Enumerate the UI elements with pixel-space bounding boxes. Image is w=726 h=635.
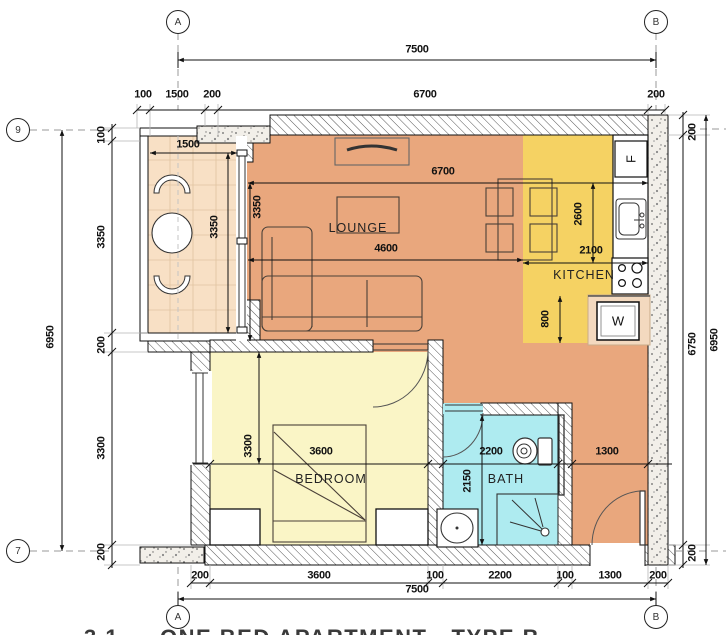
dim-bedroom-3600: 3600 — [309, 447, 332, 458]
bedroom-window — [189, 371, 212, 465]
dim-bot-1300: 1300 — [598, 571, 621, 582]
balcony-rail-left — [140, 128, 148, 341]
dim-right-overall: 6950 — [710, 328, 721, 351]
entry-door-leaf — [640, 491, 645, 545]
entry-floor — [570, 343, 648, 545]
wall-top — [270, 115, 648, 135]
dim-bath-2200: 2200 — [479, 447, 502, 458]
dim-right-6750: 6750 — [688, 332, 699, 355]
mullion — [237, 150, 247, 156]
dim-bot-100: 100 — [426, 571, 443, 582]
dim-right-200b: 200 — [688, 544, 699, 561]
dim-left-3300: 3300 — [97, 436, 108, 459]
wall-bath-top — [481, 403, 566, 415]
dim-bot-100b: 100 — [556, 571, 573, 582]
grid-bubble-9: 9 — [6, 118, 30, 142]
wall-bedroom-left-lower — [191, 463, 210, 545]
dim-left-3350: 3350 — [97, 225, 108, 248]
wall-bath-right — [558, 403, 572, 545]
dim-lounge-4600: 4600 — [374, 244, 397, 255]
balcony-table — [152, 213, 192, 253]
dim-top-200b: 200 — [647, 90, 664, 101]
dim-top-1500: 1500 — [165, 90, 188, 101]
dim-kitchen-2600: 2600 — [574, 202, 585, 225]
washer-label: W — [612, 315, 624, 328]
dim-kitchen-2100: 2100 — [579, 246, 602, 257]
bedside-table — [210, 509, 260, 545]
dim-bath-2150: 2150 — [463, 469, 474, 492]
dim-left-overall: 6950 — [46, 325, 57, 348]
dim-kitchen-800: 800 — [541, 310, 552, 327]
room-label-bath: BATH — [488, 473, 524, 486]
dim-left-200b: 200 — [97, 543, 108, 560]
dim-balcony-1500: 1500 — [176, 140, 199, 151]
dim-right-200: 200 — [688, 123, 699, 140]
dim-top-6700: 6700 — [413, 90, 436, 101]
wall-bedroom-top — [210, 340, 373, 352]
caption-number: 3.1 — [84, 625, 119, 635]
room-label-kitchen: KITCHEN — [553, 269, 615, 282]
floor-plan: A B 9 7 A B 7500 100 1500 200 6700 200 6… — [0, 0, 726, 635]
wall-right-concrete — [648, 115, 668, 565]
dim-left-200: 200 — [97, 336, 108, 353]
dim-bot-200: 200 — [191, 571, 208, 582]
dim-top-200: 200 — [203, 90, 220, 101]
grid-bubble-a-top: A — [166, 10, 190, 34]
dim-left-100: 100 — [97, 126, 108, 143]
dim-bedroom-3300: 3300 — [244, 434, 255, 457]
dim-bot-2200: 2200 — [488, 571, 511, 582]
dim-top-overall: 7500 — [405, 45, 428, 56]
toilet-cistern — [538, 438, 552, 465]
bedside-table — [376, 509, 428, 545]
grid-bubble-b-top: B — [644, 10, 668, 34]
grid-bubble-b-bottom: B — [644, 605, 668, 629]
wall-bottom-left-concrete — [140, 547, 204, 563]
dim-entry-1300: 1300 — [595, 447, 618, 458]
dim-top-100: 100 — [134, 90, 151, 101]
dim-bot-200b: 200 — [649, 571, 666, 582]
dim-balcony-3350: 3350 — [210, 215, 221, 238]
mullion — [237, 238, 247, 244]
dim-lounge-6700: 6700 — [431, 167, 454, 178]
fridge-label: F — [625, 155, 638, 163]
dim-bottom-overall: 7500 — [405, 585, 428, 596]
grid-bubble-7: 7 — [6, 539, 30, 563]
dim-bot-3600: 3600 — [307, 571, 330, 582]
room-label-lounge: LOUNGE — [329, 222, 388, 235]
dim-lounge-3350: 3350 — [253, 195, 264, 218]
shower-head — [541, 528, 549, 536]
caption-title: ONE BED APARTMENT - TYPE B — [160, 625, 540, 635]
pier-top-concrete — [197, 126, 270, 143]
mullion — [237, 327, 247, 333]
hallway-floor — [443, 343, 570, 403]
room-label-bedroom: BEDROOM — [295, 473, 367, 486]
